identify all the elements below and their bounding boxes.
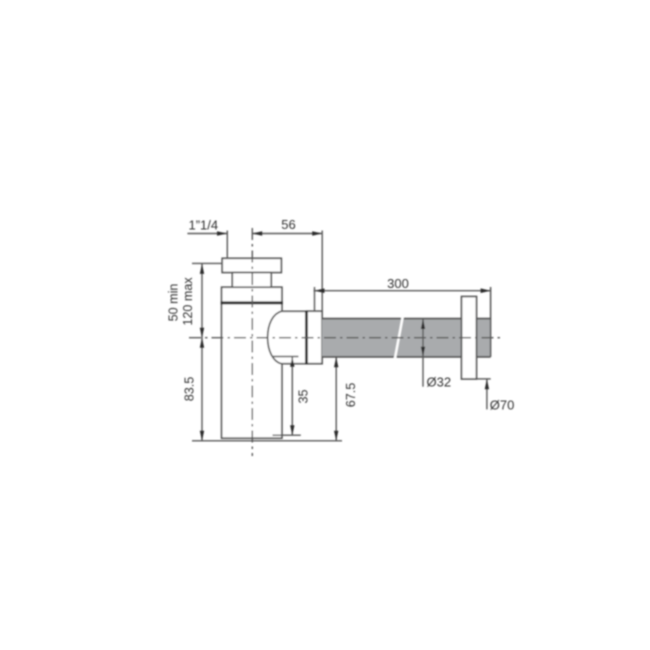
svg-text:35: 35: [297, 389, 311, 403]
svg-text:1”1/4: 1”1/4: [189, 218, 219, 233]
svg-text:Ø70: Ø70: [490, 398, 515, 413]
svg-text:83.5: 83.5: [183, 377, 197, 402]
svg-text:67.5: 67.5: [344, 383, 358, 408]
svg-text:Ø32: Ø32: [427, 375, 452, 390]
svg-text:56: 56: [281, 217, 295, 232]
svg-text:50 min: 50 min: [167, 284, 181, 322]
svg-text:120 max: 120 max: [181, 277, 195, 326]
svg-text:300: 300: [387, 276, 409, 291]
